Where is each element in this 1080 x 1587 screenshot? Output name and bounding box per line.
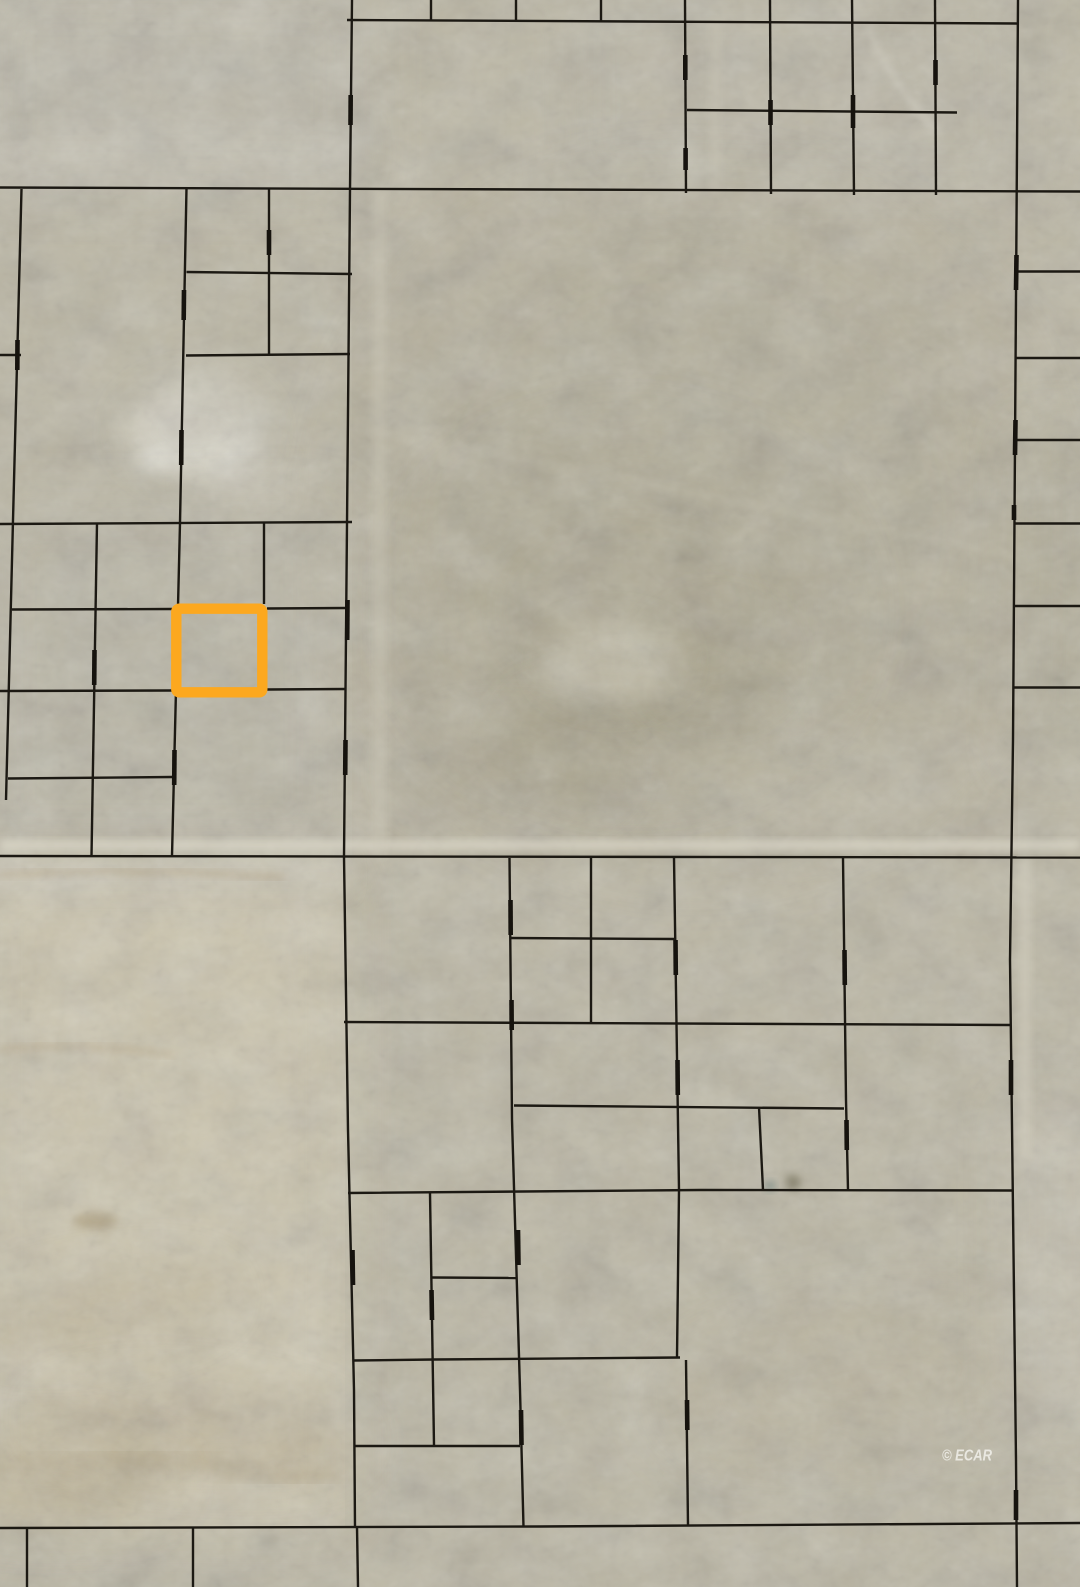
svg-text:© ECAR: © ECAR: [942, 1448, 993, 1465]
